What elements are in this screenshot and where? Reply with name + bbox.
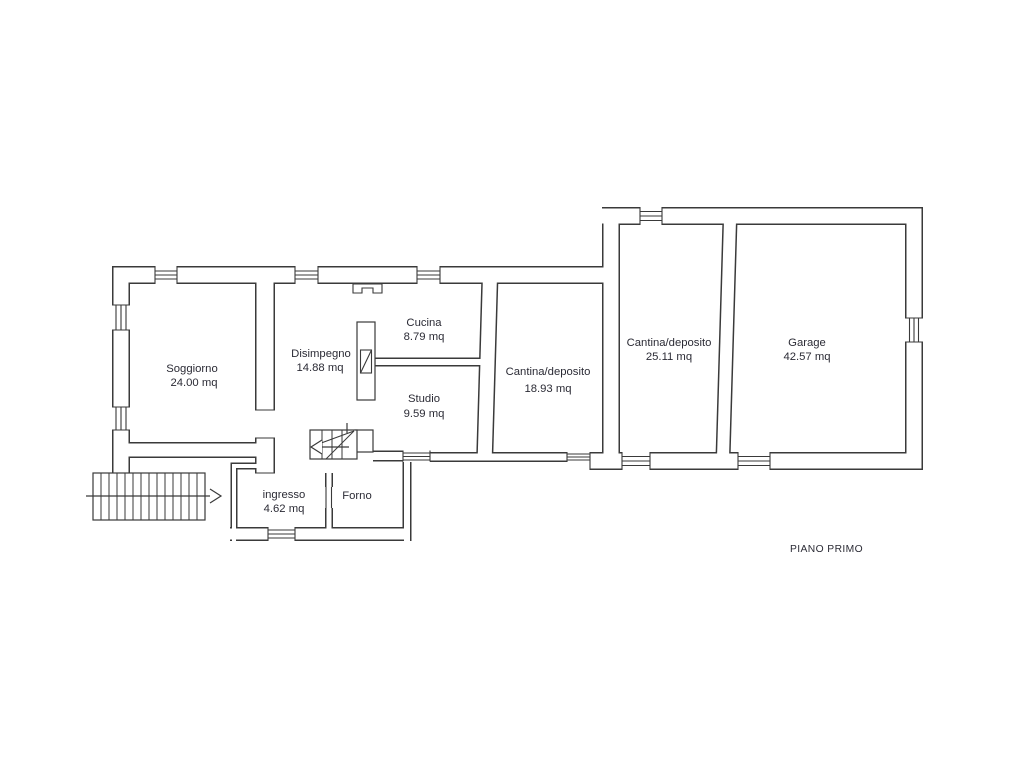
window-symbol xyxy=(640,207,662,226)
room-label-ingresso: ingresso xyxy=(263,489,306,501)
room-label-cucina: Cucina xyxy=(406,317,442,329)
room-area-cantina-1: 18.93 mq xyxy=(524,383,571,395)
window-symbol xyxy=(417,266,440,285)
room-area-disimpegno: 14.88 mq xyxy=(296,362,343,374)
room-area-studio: 9.59 mq xyxy=(404,408,445,420)
floor-plan-canvas: Soggiorno 24.00 mq Disimpegno 14.88 mq C… xyxy=(0,0,1024,768)
window-symbol xyxy=(905,318,924,342)
window-symbol xyxy=(112,305,131,330)
window-symbol xyxy=(738,452,770,471)
flue-symbol xyxy=(357,322,375,400)
room-label-cantina-1: Cantina/deposito xyxy=(506,366,591,378)
room-label-forno: Forno xyxy=(342,490,372,502)
floor-title: PIANO PRIMO xyxy=(790,544,863,555)
room-area-cantina-2: 25.11 mq xyxy=(646,351,692,363)
room-label-cantina-2: Cantina/deposito xyxy=(627,337,712,349)
room-label-garage: Garage xyxy=(788,337,826,349)
window-symbol xyxy=(567,452,590,463)
room-area-soggiorno: 24.00 mq xyxy=(170,377,217,389)
window-symbol xyxy=(155,266,177,285)
window-symbol xyxy=(112,407,131,430)
wall-strokes-outer xyxy=(121,216,914,541)
chimney-symbol xyxy=(353,284,382,293)
window-symbol xyxy=(622,452,650,471)
winder-staircase-icon xyxy=(310,423,357,459)
door-symbol xyxy=(326,487,332,508)
room-label-soggiorno: Soggiorno xyxy=(166,363,218,375)
room-area-cucina: 8.79 mq xyxy=(404,331,445,343)
room-label-disimpegno: Disimpegno xyxy=(291,348,351,360)
door-symbol xyxy=(268,527,295,542)
room-label-studio: Studio xyxy=(408,393,440,405)
wall-strokes-infill xyxy=(121,216,914,541)
room-area-garage: 42.57 mq xyxy=(783,351,830,363)
external-staircase-icon xyxy=(86,473,221,520)
door-symbol xyxy=(403,450,430,462)
floor-plan-page: Soggiorno 24.00 mq Disimpegno 14.88 mq C… xyxy=(0,0,1024,768)
window-symbol xyxy=(295,266,318,285)
room-area-ingresso: 4.62 mq xyxy=(264,503,305,515)
wall-block-stair-right xyxy=(355,430,373,452)
